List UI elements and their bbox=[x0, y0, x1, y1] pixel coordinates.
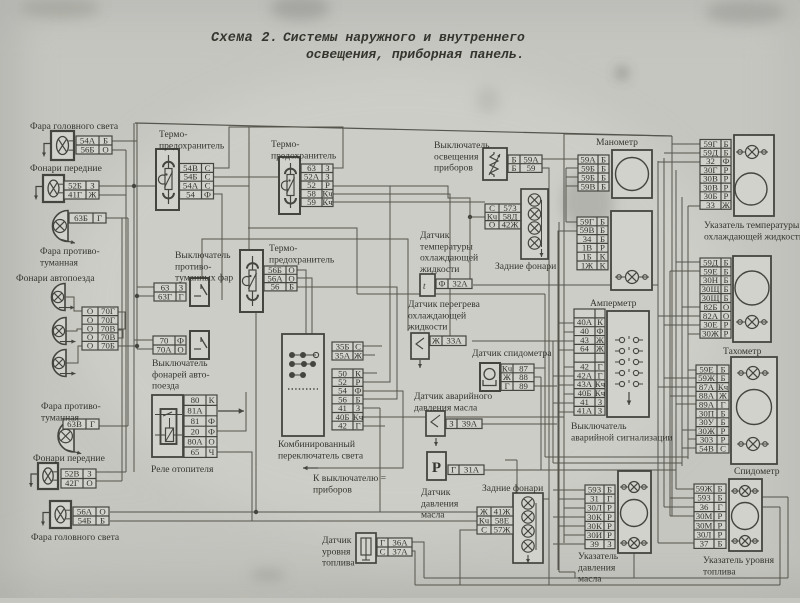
svg-text:56Б: 56Б bbox=[81, 144, 95, 154]
svg-text:35А: 35А bbox=[335, 350, 351, 360]
svg-text:О: О bbox=[489, 220, 495, 230]
svg-text:33А: 33А bbox=[446, 336, 462, 346]
svg-text:Термо-: Термо- bbox=[269, 243, 297, 254]
svg-text:фонарей авто-: фонарей авто- bbox=[152, 369, 210, 380]
svg-text:О: О bbox=[87, 341, 93, 351]
svg-text:Р: Р bbox=[724, 329, 729, 339]
svg-text:37: 37 bbox=[700, 539, 709, 549]
svg-text:Фара головного света: Фара головного света bbox=[30, 121, 119, 132]
svg-text:Манометр: Манометр bbox=[596, 137, 638, 148]
svg-text:С: С bbox=[380, 546, 386, 556]
svg-text:Б: Б bbox=[289, 282, 294, 292]
svg-text:Фонари передние: Фонари передние bbox=[30, 163, 102, 174]
svg-text:89: 89 bbox=[519, 381, 528, 391]
svg-text:Ж: Ж bbox=[89, 189, 97, 199]
svg-text:З: З bbox=[598, 406, 602, 416]
svg-text:80: 80 bbox=[191, 395, 200, 405]
svg-text:Реле отопителя: Реле отопителя bbox=[151, 464, 214, 475]
svg-text:P: P bbox=[432, 460, 441, 476]
svg-text:Б: Б bbox=[717, 539, 722, 549]
svg-text:Указатель: Указатель bbox=[578, 551, 619, 562]
svg-text:Фара головного света: Фара головного света bbox=[31, 532, 120, 543]
svg-text:65: 65 bbox=[191, 447, 200, 457]
svg-text:Выключатель: Выключатель bbox=[571, 421, 627, 432]
svg-text:Ж: Ж bbox=[722, 200, 730, 210]
svg-text:Б: Б bbox=[601, 181, 606, 191]
svg-text:41Г: 41Г bbox=[68, 189, 82, 199]
svg-text:31А: 31А bbox=[464, 465, 480, 475]
svg-text:59: 59 bbox=[307, 197, 316, 207]
svg-text:Г: Г bbox=[355, 420, 360, 430]
svg-text:охлаждающей: охлаждающей bbox=[408, 310, 466, 321]
svg-text:К: К bbox=[209, 395, 215, 405]
svg-text:О: О bbox=[177, 344, 183, 354]
svg-text:Б: Б bbox=[100, 515, 105, 525]
svg-text:70А: 70А bbox=[156, 344, 172, 354]
svg-text:аварийной сигнализации: аварийной сигнализации bbox=[571, 432, 673, 443]
svg-text:64: 64 bbox=[580, 344, 589, 354]
svg-text:топлива: топлива bbox=[703, 566, 736, 577]
svg-text:Датчик: Датчик bbox=[420, 230, 450, 241]
svg-text:63Б: 63Б bbox=[74, 213, 88, 223]
svg-text:Г: Г bbox=[97, 213, 102, 223]
svg-text:Датчик перегрева: Датчик перегрева bbox=[408, 299, 481, 310]
svg-text:Задние фонари: Задние фонари bbox=[495, 261, 556, 272]
svg-text:освещения: освещения bbox=[434, 151, 479, 162]
svg-text:37А: 37А bbox=[392, 546, 408, 556]
svg-text:Ж: Ж bbox=[432, 336, 440, 346]
svg-text:Б: Б bbox=[511, 163, 516, 173]
svg-text:Системы наружного и внутреннег: Системы наружного и внутреннего bbox=[283, 30, 525, 45]
svg-text:предохранитель: предохранитель bbox=[271, 150, 337, 161]
svg-text:Кч: Кч bbox=[322, 197, 333, 207]
svg-text:З: З bbox=[607, 539, 611, 549]
svg-text:Фара противо-: Фара противо- bbox=[41, 401, 101, 412]
svg-text:Задние фонари: Задние фонари bbox=[482, 483, 543, 494]
svg-text:туманная: туманная bbox=[40, 257, 79, 268]
svg-text:Г: Г bbox=[451, 465, 456, 475]
svg-text:температуры: температуры bbox=[420, 241, 473, 252]
svg-text:Спидометр: Спидометр bbox=[734, 466, 780, 477]
svg-text:приборов: приборов bbox=[434, 163, 473, 174]
svg-text:давления: давления bbox=[421, 498, 459, 509]
svg-text:57Ж: 57Ж bbox=[494, 524, 511, 534]
svg-text:Указатель температуры: Указатель температуры bbox=[704, 220, 800, 231]
svg-text:Ф: Ф bbox=[208, 416, 215, 426]
svg-text:56: 56 bbox=[271, 282, 280, 292]
svg-text:70Б: 70Б bbox=[101, 341, 115, 351]
svg-text:Ж: Ж bbox=[596, 344, 604, 354]
svg-text:Схема 2.: Схема 2. bbox=[211, 31, 278, 46]
svg-text:1Ж: 1Ж bbox=[581, 260, 593, 270]
svg-text:масла: масла bbox=[578, 574, 602, 585]
svg-text:Ж: Ж bbox=[354, 350, 362, 360]
svg-text:предохранитель: предохранитель bbox=[269, 254, 335, 265]
svg-text:З: З bbox=[449, 419, 453, 429]
svg-text:39А: 39А bbox=[462, 419, 478, 429]
svg-text:приборов: приборов bbox=[313, 484, 352, 495]
svg-text:Г: Г bbox=[90, 419, 95, 429]
svg-text:81А: 81А bbox=[187, 406, 203, 416]
svg-text:Ч: Ч bbox=[209, 447, 215, 457]
svg-text:54: 54 bbox=[186, 189, 195, 199]
svg-text:Комбинированный: Комбинированный bbox=[278, 439, 355, 450]
svg-text:С: С bbox=[481, 524, 487, 534]
svg-text:Указатель уровня: Указатель уровня bbox=[703, 555, 775, 566]
svg-text:О: О bbox=[208, 437, 214, 447]
svg-text:К выключателю =: К выключателю = bbox=[313, 473, 386, 484]
svg-text:Термо-: Термо- bbox=[159, 129, 187, 140]
svg-text:поезда: поезда bbox=[152, 381, 180, 392]
svg-text:Датчик спидометра: Датчик спидометра bbox=[472, 348, 552, 359]
svg-text:Датчик аварийного: Датчик аварийного bbox=[414, 391, 492, 402]
svg-text:20: 20 bbox=[191, 426, 200, 436]
svg-text:давления масла: давления масла bbox=[414, 402, 478, 413]
svg-text:54В: 54В bbox=[699, 444, 714, 454]
svg-text:предохранитель: предохранитель bbox=[159, 140, 225, 151]
svg-text:32А: 32А bbox=[452, 279, 468, 289]
svg-text:54Б: 54Б bbox=[78, 515, 92, 525]
svg-text:охлаждающей: охлаждающей bbox=[420, 253, 478, 264]
svg-text:39: 39 bbox=[590, 539, 599, 549]
svg-text:масла: масла bbox=[421, 510, 445, 521]
svg-text:Тахометр: Тахометр bbox=[723, 346, 762, 357]
svg-text:З: З bbox=[87, 469, 91, 479]
svg-text:42Ж: 42Ж bbox=[502, 220, 519, 230]
svg-text:81: 81 bbox=[191, 416, 200, 426]
svg-text:О: О bbox=[102, 144, 108, 154]
svg-text:уровня: уровня bbox=[322, 546, 351, 557]
svg-text:Г: Г bbox=[504, 381, 509, 391]
svg-text:давления: давления bbox=[578, 562, 616, 573]
svg-text:жидкости: жидкости bbox=[419, 264, 459, 275]
svg-text:Датчик: Датчик bbox=[421, 487, 451, 498]
svg-text:охлаждающей жидкости: охлаждающей жидкости bbox=[704, 231, 800, 242]
svg-text:туманная: туманная bbox=[41, 412, 80, 423]
svg-text:топлива: топлива bbox=[322, 558, 355, 569]
svg-text:Ф: Ф bbox=[208, 426, 215, 436]
svg-text:переключатель света: переключатель света bbox=[278, 450, 364, 461]
svg-text:противо-: противо- bbox=[175, 261, 211, 272]
svg-text:Ф: Ф bbox=[439, 279, 446, 289]
svg-text:Выключатель: Выключатель bbox=[175, 250, 231, 261]
svg-text:30Ж: 30Ж bbox=[702, 329, 719, 339]
svg-text:59В: 59В bbox=[581, 181, 596, 191]
svg-text:Амперметр: Амперметр bbox=[590, 298, 637, 309]
svg-text:42: 42 bbox=[338, 420, 347, 430]
svg-text:Фонари автопоезда: Фонари автопоезда bbox=[16, 273, 95, 284]
svg-text:63Г: 63Г bbox=[158, 291, 172, 301]
svg-text:С: С bbox=[720, 444, 726, 454]
svg-text:52В: 52В bbox=[65, 469, 80, 479]
svg-text:Фара противо-: Фара противо- bbox=[40, 246, 100, 257]
svg-text:41А: 41А bbox=[577, 406, 593, 416]
svg-text:80А: 80А bbox=[187, 437, 203, 447]
svg-text:Г: Г bbox=[178, 291, 183, 301]
svg-text:42Г: 42Г bbox=[65, 478, 79, 488]
svg-text:О: О bbox=[86, 478, 92, 488]
svg-text:Ф: Ф bbox=[204, 189, 211, 199]
svg-text:жидкости: жидкости bbox=[407, 322, 447, 333]
svg-text:33: 33 bbox=[706, 200, 715, 210]
svg-text:освещения, приборная панель.: освещения, приборная панель. bbox=[306, 47, 524, 62]
svg-text:Датчик: Датчик bbox=[322, 535, 352, 546]
svg-text:туманных фар: туманных фар bbox=[175, 273, 233, 284]
svg-text:Фонари передние: Фонари передние bbox=[33, 453, 105, 464]
svg-text:59: 59 bbox=[527, 163, 536, 173]
svg-text:Термо-: Термо- bbox=[271, 139, 299, 150]
svg-text:К: К bbox=[600, 260, 606, 270]
svg-text:Выключатель: Выключатель bbox=[152, 358, 208, 369]
svg-text:Выключатель: Выключатель bbox=[434, 140, 490, 151]
